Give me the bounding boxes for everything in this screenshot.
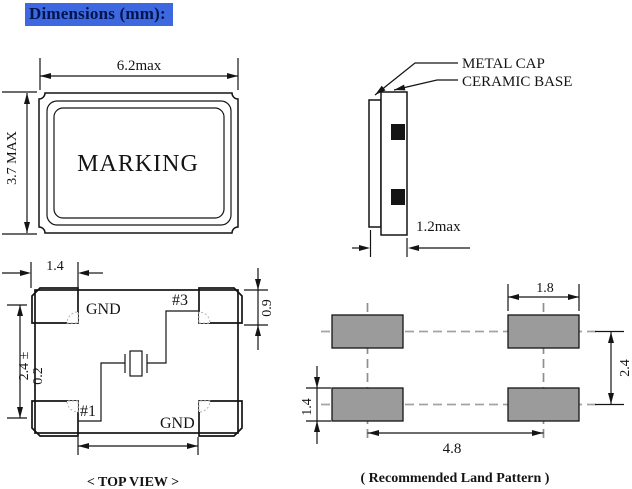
arrowhead xyxy=(532,430,543,436)
castellation-notch xyxy=(67,401,78,412)
dimensions-drawing-page: MARKING 6.2max 3.7 MAX xyxy=(0,0,632,489)
dim-land-row-pitch-label: 2.4 xyxy=(618,359,632,377)
arrowhead xyxy=(608,332,614,343)
arrowhead xyxy=(568,294,579,300)
arrowhead xyxy=(17,407,23,418)
land-pad-bottom-right xyxy=(508,388,579,421)
pad-label-gnd-bottom: GND xyxy=(160,415,195,432)
arrowhead xyxy=(255,279,261,290)
arrowhead xyxy=(17,305,23,316)
dim-body-height-tol-label: 0.2 xyxy=(31,367,46,385)
arrowhead xyxy=(608,393,614,404)
ceramic-base-label: CERAMIC BASE xyxy=(462,74,572,90)
castellation-notch xyxy=(67,312,78,323)
package-side-view: METAL CAP CERAMIC BASE 1.2max xyxy=(352,56,572,257)
arrowhead xyxy=(20,270,31,276)
pad-body-outline xyxy=(35,290,238,433)
leader-ceramic-base: CERAMIC BASE xyxy=(394,74,572,90)
arrowhead xyxy=(255,325,261,336)
arrowhead xyxy=(78,443,89,449)
land-pattern-view: 1.8 2.4 1.4 xyxy=(300,281,632,486)
marking-label: MARKING xyxy=(77,151,199,177)
arrowhead xyxy=(227,73,238,79)
arrowhead xyxy=(24,93,30,104)
dim-land-col-pitch: 4.8 xyxy=(368,430,544,457)
side-pad-top xyxy=(391,124,405,140)
dim-package-width-label: 6.2max xyxy=(117,58,162,74)
dim-land-col-pitch-label: 4.8 xyxy=(443,441,462,457)
crystal-body xyxy=(130,351,142,376)
dim-bottom-span xyxy=(78,437,198,455)
land-pad-bottom-left xyxy=(332,388,403,421)
pad-label-gnd-top: GND xyxy=(86,301,121,318)
arrowhead xyxy=(314,377,320,388)
pad-layout-view: GND #3 #1 GND 1.4 xyxy=(2,259,275,489)
arrowhead xyxy=(78,270,89,276)
pad-label-3: #3 xyxy=(172,292,188,309)
dim-thickness-label: 1.2max xyxy=(416,219,461,235)
metal-cap-label: METAL CAP xyxy=(462,56,545,72)
pad-label-1: #1 xyxy=(80,403,96,420)
arrowhead xyxy=(508,294,519,300)
dim-pad-height-label: 0.9 xyxy=(260,299,275,317)
top-view-caption: < TOP VIEW > xyxy=(87,475,179,489)
arrowhead xyxy=(314,421,320,432)
dim-corner-pad-width: 1.4 xyxy=(2,259,103,288)
dim-pad-height: 0.9 xyxy=(244,268,275,350)
arrowhead xyxy=(40,73,51,79)
dim-package-width: 6.2max xyxy=(40,58,238,90)
arrowhead xyxy=(359,245,370,251)
arrowhead xyxy=(187,443,198,449)
castellation-notch xyxy=(199,312,210,323)
page-title: Dimensions (mm): xyxy=(25,3,173,26)
arrowhead xyxy=(394,85,405,91)
ceramic-base-shape xyxy=(381,92,407,235)
dim-package-height: 3.7 MAX xyxy=(2,92,37,234)
dim-package-height-label: 3.7 MAX xyxy=(5,131,20,185)
technical-drawing-canvas: MARKING 6.2max 3.7 MAX xyxy=(0,0,632,489)
dim-body-height-label: 2.4 ± xyxy=(17,351,32,380)
package-top-view: MARKING 6.2max 3.7 MAX xyxy=(2,58,238,234)
side-pad-bottom xyxy=(391,189,405,205)
wire-pad3 xyxy=(147,311,199,363)
dim-land-pad-width-label: 1.8 xyxy=(536,281,554,296)
arrowhead xyxy=(24,222,30,233)
arrowhead xyxy=(368,430,379,436)
dim-land-pad-height-label: 1.4 xyxy=(300,398,315,416)
land-pad-top-left xyxy=(332,315,403,348)
castellation-notch xyxy=(199,401,210,412)
dim-land-row-pitch: 2.4 xyxy=(595,332,632,405)
crystal-symbol xyxy=(78,311,199,421)
metal-cap-shape xyxy=(369,100,381,227)
land-pad-top-right xyxy=(508,315,579,348)
land-pattern-caption: ( Recommended Land Pattern ) xyxy=(361,471,550,486)
arrowhead xyxy=(408,245,419,251)
dim-corner-pad-width-label: 1.4 xyxy=(46,259,64,274)
